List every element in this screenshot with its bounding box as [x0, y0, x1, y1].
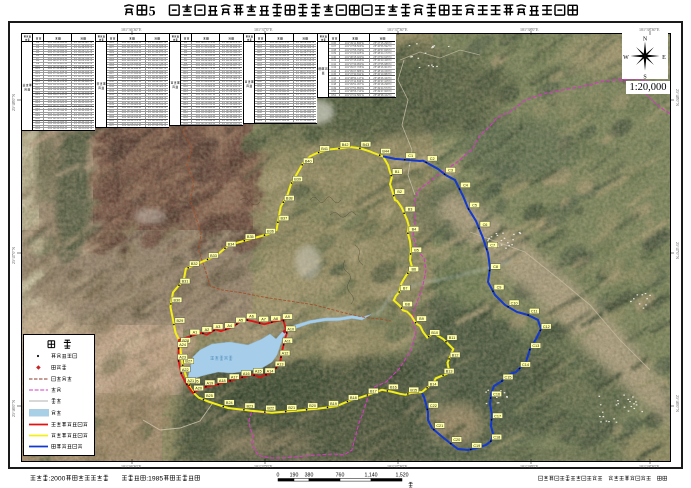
svg-text:1,140: 1,140	[365, 473, 378, 479]
svg-text:1,520: 1,520	[396, 473, 409, 479]
svg-text:380: 380	[305, 473, 314, 479]
svg-text::1985: :1985	[146, 476, 163, 483]
svg-text:760: 760	[336, 473, 345, 479]
svg-text:0: 0	[277, 473, 280, 479]
svg-text::2000: :2000	[49, 476, 66, 483]
svg-text:5: 5	[149, 3, 156, 18]
svg-text:190: 190	[290, 473, 299, 479]
